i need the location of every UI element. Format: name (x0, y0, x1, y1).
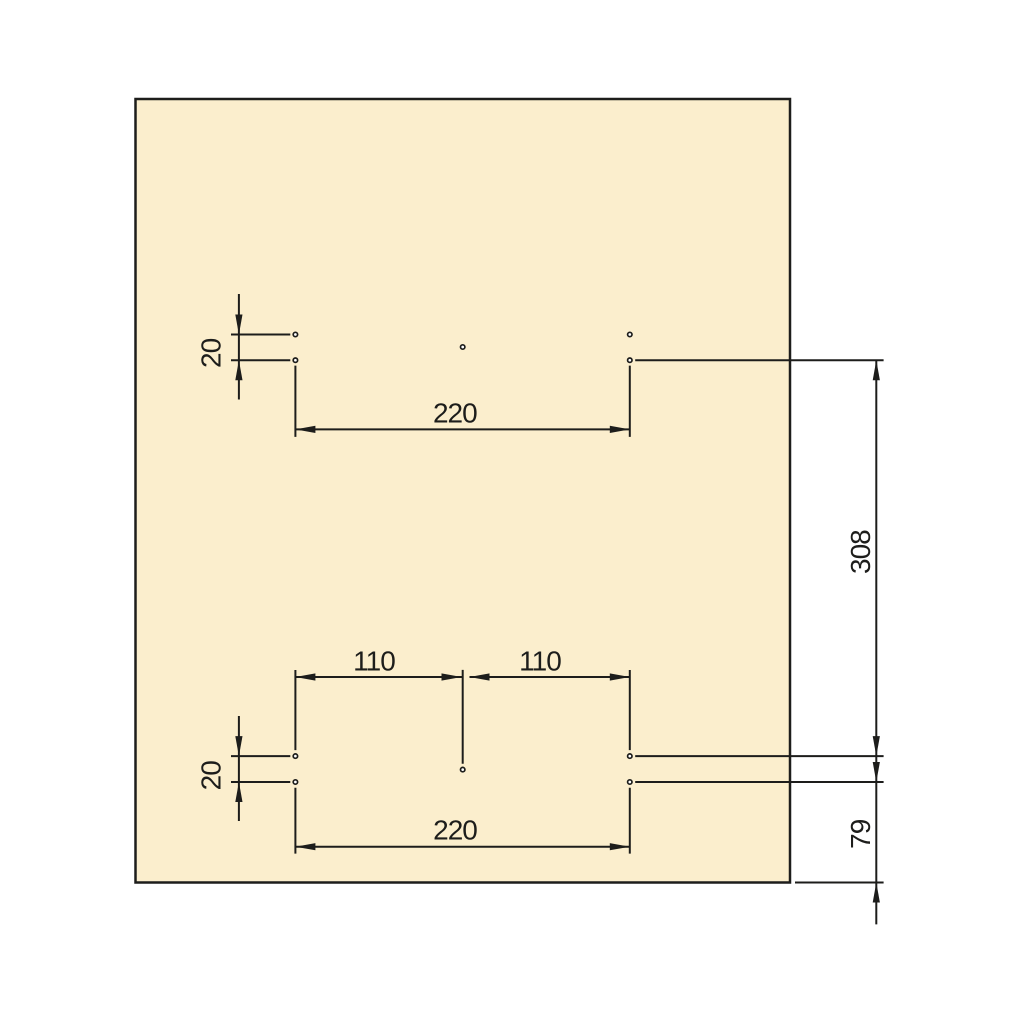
svg-text:220: 220 (433, 397, 477, 428)
svg-text:20: 20 (196, 338, 227, 368)
svg-text:20: 20 (196, 761, 227, 791)
svg-text:110: 110 (519, 646, 561, 677)
svg-text:110: 110 (353, 646, 395, 677)
svg-text:220: 220 (433, 814, 477, 845)
svg-text:79: 79 (845, 819, 876, 849)
svg-text:308: 308 (845, 530, 876, 574)
